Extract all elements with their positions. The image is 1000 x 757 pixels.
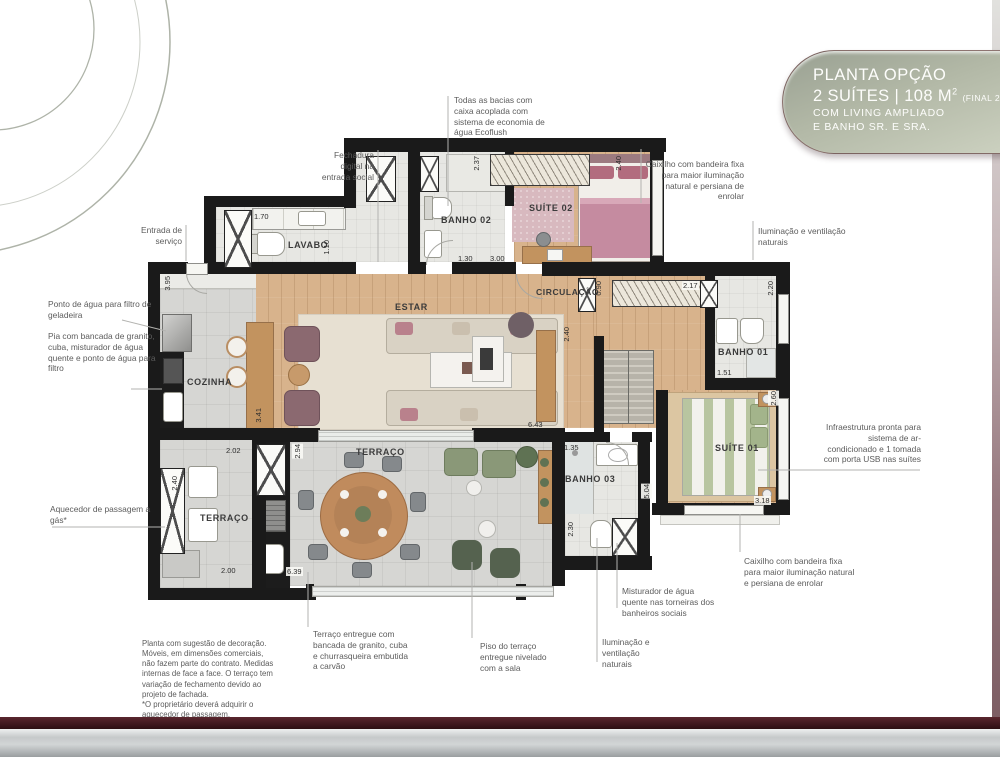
- dim-suite01-h: 2.60: [768, 391, 779, 406]
- bottom-maroon-bar: [0, 717, 1000, 729]
- plate-icon: [340, 490, 349, 499]
- title-box: PLANTA OPÇÃO 2 SUÍTES | 108 M2 (FINAL 2)…: [782, 50, 1000, 154]
- door-banho01: [700, 280, 718, 308]
- callout-ponto-agua: Ponto de água para filtro de geladeira: [48, 299, 160, 321]
- callout-fechadura: Fechadura digital na entrada social: [312, 150, 374, 182]
- wall-segment: [552, 432, 610, 442]
- door-banho03: [612, 518, 638, 556]
- callout-iluminacao-right: Iluminação e ventilação naturais: [758, 226, 850, 248]
- toilet-icon: [740, 318, 764, 344]
- room-label-suite01: SUÍTE 01: [715, 443, 759, 453]
- dim-closet-w: 1.70: [254, 212, 269, 221]
- desk-chair: [536, 232, 551, 247]
- wardrobe-suite02: [490, 154, 590, 186]
- callout-misturador: Misturador de água quente nas torneiras …: [622, 586, 718, 618]
- wall-segment: [408, 152, 420, 274]
- callout-terraco-entregue: Terraço entregue com bancada de granito,…: [313, 629, 409, 672]
- sideboard: [536, 330, 556, 422]
- callout-pia: Pia com bancada de granito, cuba, mistur…: [48, 331, 160, 374]
- wall-segment: [705, 378, 790, 390]
- dim-lavabo-h: 1.10: [322, 240, 331, 255]
- terrace-glass-railing: [312, 586, 554, 597]
- shaft-lavabo: [224, 210, 252, 268]
- plant-icon: [540, 458, 549, 467]
- dim-banho01-w: 1.51: [717, 368, 732, 377]
- chair: [400, 544, 420, 560]
- cushion: [460, 408, 478, 421]
- wall-segment: [262, 428, 320, 442]
- cushion: [400, 408, 418, 421]
- centerpiece-plant-icon: [355, 506, 371, 522]
- wall-segment: [656, 390, 668, 515]
- dim-terraco-serv-w: 2.00: [221, 566, 236, 575]
- callout-aquecedor: Aquecedor de passagem a gás*: [50, 504, 162, 526]
- plant-icon: [516, 446, 538, 468]
- pillow: [750, 404, 768, 425]
- title-line1: PLANTA OPÇÃO: [813, 65, 1000, 86]
- dim-wardrobe-w: 2.17: [682, 281, 699, 290]
- cushion: [395, 322, 413, 335]
- plant-icon: [540, 498, 549, 507]
- sink-icon: [298, 211, 326, 226]
- room-label-suite02: SUÍTE 02: [529, 203, 573, 213]
- chair: [352, 562, 372, 578]
- kitchen-sink-icon: [163, 392, 183, 422]
- bar-stool: [226, 336, 248, 358]
- ledge: [660, 515, 780, 525]
- armchair: [284, 326, 320, 362]
- dim-terraco-h: 2.94: [292, 444, 303, 459]
- wall-segment: [594, 336, 604, 432]
- plate-icon: [378, 490, 387, 499]
- title-line2: 2 SUÍTES | 108 M2 (FINAL 2): [813, 86, 1000, 107]
- plant-icon: [540, 478, 549, 487]
- dim-estar-w: 6.43: [528, 420, 543, 429]
- dim-banho03-h: 2.30: [566, 522, 575, 537]
- dim-terraco-serv-gap: 2.02: [226, 446, 241, 455]
- callout-entrada-servico: Entrada de serviço: [130, 225, 182, 247]
- dim-estar-h: 3.41: [254, 408, 263, 423]
- wall-segment: [452, 262, 516, 274]
- window-banho01: [778, 294, 789, 344]
- title-line4: E BANHO SR. E SRA.: [813, 120, 1000, 134]
- dim-suite02-h: 2.40: [614, 156, 623, 171]
- shower-door-banho02: [420, 156, 439, 192]
- toilet-icon: [257, 232, 285, 256]
- fridge: [162, 314, 192, 352]
- room-label-circulacao: CIRCULAÇÃO: [536, 287, 599, 297]
- tv-icon: [480, 348, 493, 370]
- vent-churrasqueira: [256, 444, 286, 496]
- plate-icon: [378, 528, 387, 537]
- armchair: [284, 390, 320, 426]
- room-label-estar: ESTAR: [395, 302, 428, 312]
- sink-icon: [716, 318, 738, 344]
- side-table: [288, 364, 310, 386]
- washer-icon: [162, 550, 200, 578]
- window-suite01-south: [684, 505, 764, 515]
- floor-plan-page: LAVABO BANHO 02 SUÍTE 02 ESTAR CIRCULAÇÃ…: [0, 0, 1000, 757]
- wall-segment: [408, 262, 426, 274]
- dim-terraco-w: 6.39: [286, 567, 303, 576]
- pouf: [508, 312, 534, 338]
- callout-bacias: Todas as bacias com caixa acoplada com s…: [454, 95, 552, 138]
- callout-infraestrutura: Infraestrutura pronta para sistema de ar…: [822, 422, 921, 465]
- title-line2-note: (FINAL 2): [962, 93, 1000, 103]
- dim-suite02-w: 3.00: [490, 254, 505, 263]
- callout-caixilho-top: Caixilho com bandeira fixa para maior il…: [645, 159, 744, 202]
- side-table: [466, 480, 482, 496]
- dim-circ-w: 0.90: [594, 281, 603, 296]
- dim-servico-h: 3.95: [163, 276, 172, 291]
- callout-iluminacao-bottom: Iluminação e ventilação naturais: [602, 637, 664, 669]
- wall-segment: [204, 196, 356, 207]
- toilet-icon: [590, 520, 612, 548]
- chair: [298, 490, 314, 510]
- wall-segment: [148, 588, 316, 600]
- wall-segment: [344, 138, 666, 152]
- blanket-fold: [580, 198, 650, 204]
- chair: [308, 544, 328, 560]
- title-line2-sup: 2: [952, 86, 957, 96]
- wall-segment: [638, 432, 650, 568]
- dim-banho01-h: 2.20: [766, 281, 775, 296]
- disclaimer-text: Planta com sugestão de decoração. Móveis…: [142, 639, 274, 720]
- wall-segment: [148, 428, 264, 440]
- sliding-glass-door: [318, 430, 474, 442]
- kitchen-upper-counter: [160, 274, 256, 289]
- lounge-chair: [444, 448, 478, 476]
- closet-suite01: [602, 350, 654, 424]
- callout-piso-terraco: Piso do terraço entregue nivelado com a …: [480, 641, 564, 673]
- room-label-terraco: TERRAÇO: [356, 447, 405, 457]
- room-label-cozinha: COZINHA: [187, 377, 232, 387]
- lounge-chair: [482, 450, 516, 478]
- room-label-terraco-servico: TERRAÇO: [200, 513, 249, 523]
- chair: [382, 456, 402, 472]
- dim-circ-h: 2.40: [562, 327, 571, 342]
- callout-caixilho-bottom: Caixilho com bandeira fixa para maior il…: [744, 556, 856, 588]
- dim-banho02-h: 2.37: [472, 156, 481, 171]
- window-suite01: [778, 398, 789, 500]
- chair: [410, 492, 426, 512]
- dim-banho03-w: 1.35: [564, 443, 579, 452]
- side-table: [478, 520, 496, 538]
- dim-banho02-w: 1.30: [458, 254, 473, 263]
- bottom-gray-bar: [0, 729, 1000, 757]
- stove-icon: [163, 358, 183, 384]
- laundry-tank-icon: [188, 466, 218, 498]
- dim-aquecedor-h: 2.40: [170, 476, 179, 491]
- title-line2-main: 2 SUÍTES | 108 M: [813, 87, 952, 105]
- dim-suite01-w: 3.18: [754, 496, 771, 505]
- pouf: [452, 540, 482, 570]
- wall-segment: [552, 556, 652, 570]
- cushion: [452, 322, 470, 335]
- room-label-banho02: BANHO 02: [441, 215, 491, 225]
- dim-terraco-right-h: 5.04: [641, 484, 652, 499]
- laptop-icon: [547, 249, 563, 261]
- room-label-banho01: BANHO 01: [718, 347, 768, 357]
- title-line3: COM LIVING AMPLIADO: [813, 106, 1000, 120]
- pouf: [490, 548, 520, 578]
- wall-segment: [542, 262, 790, 276]
- room-label-banho03: BANHO 03: [565, 474, 615, 484]
- wall-segment: [472, 428, 554, 442]
- closet-divider: [628, 351, 629, 423]
- plate-icon: [340, 528, 349, 537]
